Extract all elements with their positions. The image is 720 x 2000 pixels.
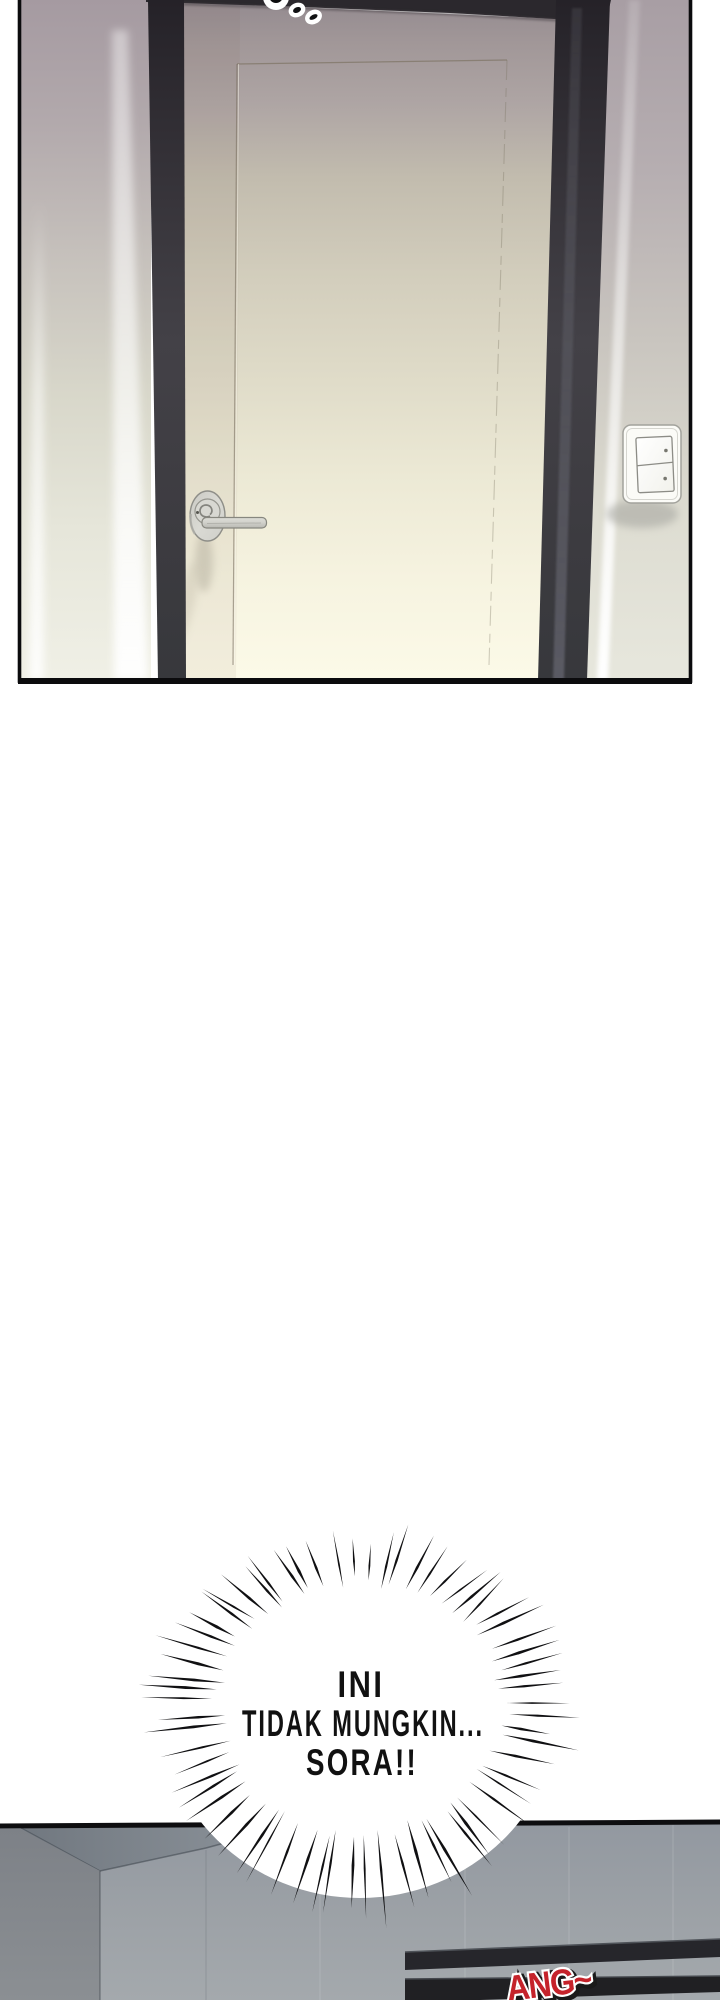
svg-text:TIDAK MUNGKIN...: TIDAK MUNGKIN... bbox=[242, 1703, 484, 1744]
svg-text:SORA!!: SORA!! bbox=[306, 1742, 418, 1783]
svg-text:INI: INI bbox=[338, 1664, 385, 1705]
